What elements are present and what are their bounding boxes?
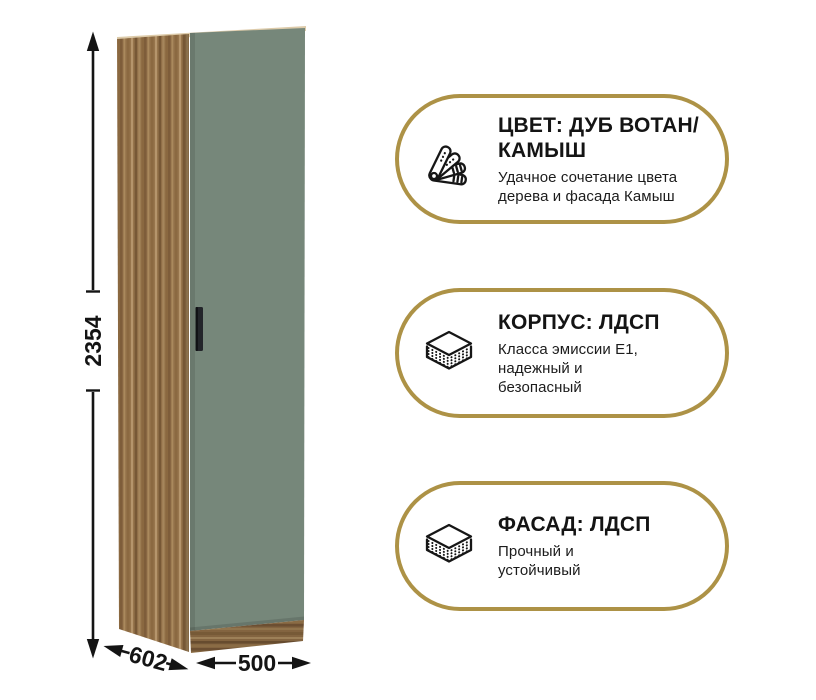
arrow-right-icon (168, 658, 190, 675)
arrow-up-icon (87, 32, 99, 52)
height-value-label: 2354 (80, 315, 106, 366)
product-infographic: 2354 602 500 (0, 0, 816, 700)
badge-title: ЦВЕТ: ДУБ ВОТАН/ КАМЫШ (498, 113, 712, 163)
door-left-shadow (190, 33, 195, 631)
arrow-left-icon (196, 657, 215, 669)
width-value-label: 500 (238, 650, 276, 676)
layered-board-icon (421, 325, 477, 381)
badge-subtitle-line: устойчивый (498, 561, 712, 580)
color-swatch-fan-icon (421, 131, 477, 187)
badge-title-line: ЦВЕТ: ДУБ ВОТАН/ (498, 113, 712, 138)
badge-subtitle: Класса эмиссии Е1, надежный и безопасный (498, 340, 712, 397)
badge-subtitle-line: Класса эмиссии Е1, (498, 340, 712, 359)
badge-subtitle: Удачное сочетание цвета дерева и фасада … (498, 168, 712, 206)
width-dimension: 500 (196, 650, 311, 676)
feature-badge-body: КОРПУС: ЛДСП Класса эмиссии Е1, надежный… (395, 288, 729, 418)
badge-subtitle-line: дерева и фасада Камыш (498, 187, 712, 206)
badge-title-line: ФАСАД: ЛДСП (498, 512, 712, 537)
badge-subtitle-line: безопасный (498, 378, 712, 397)
badge-subtitle-line: надежный и (498, 359, 712, 378)
badge-subtitle: Прочный и устойчивый (498, 542, 712, 580)
height-dimension: 2354 (80, 32, 106, 659)
badge-subtitle-line: Прочный и (498, 542, 712, 561)
door-handle (196, 307, 204, 351)
side-panel-edge-shade (185, 34, 189, 652)
badge-subtitle-line: Удачное сочетание цвета (498, 168, 712, 187)
badge-title-line: КОРПУС: ЛДСП (498, 310, 712, 335)
badge-title: ФАСАД: ЛДСП (498, 512, 712, 537)
badge-title-line: КАМЫШ (498, 138, 712, 163)
layered-board-icon (421, 518, 477, 574)
feature-badge-facade: ФАСАД: ЛДСП Прочный и устойчивый (395, 481, 729, 611)
depth-value-label: 602 (126, 641, 170, 676)
arrow-down-icon (87, 639, 99, 659)
cabinet-side-panel (117, 34, 189, 652)
badge-title: КОРПУС: ЛДСП (498, 310, 712, 335)
arrow-right-icon (292, 657, 311, 669)
cabinet-door (190, 28, 305, 631)
arrow-left-icon (102, 640, 124, 657)
feature-badge-color: ЦВЕТ: ДУБ ВОТАН/ КАМЫШ Удачное сочетание… (395, 94, 729, 224)
